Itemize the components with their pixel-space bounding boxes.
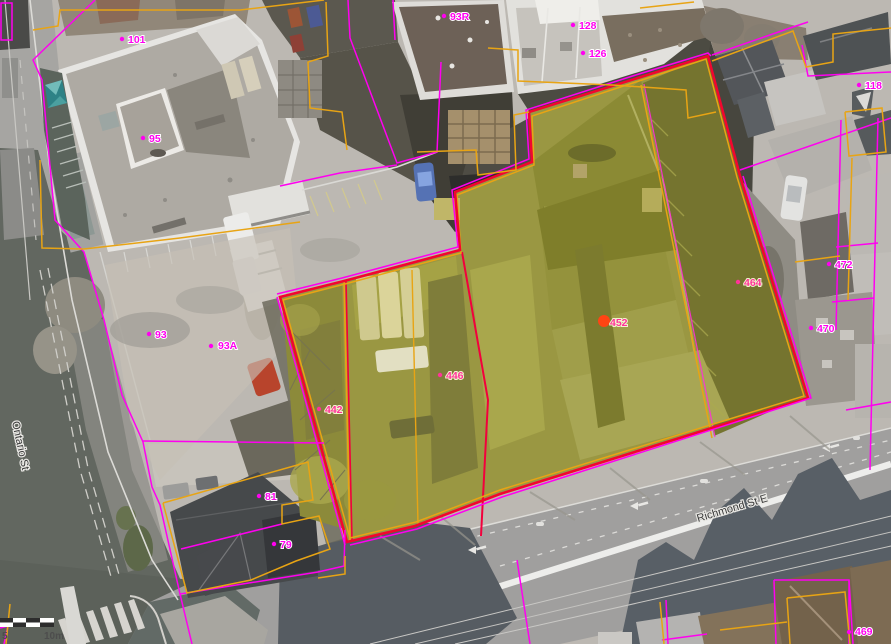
- svg-text:10m: 10m: [44, 631, 64, 642]
- svg-text:93: 93: [155, 329, 167, 341]
- svg-text:469: 469: [855, 626, 873, 638]
- svg-text:95: 95: [149, 133, 161, 145]
- svg-text:81: 81: [265, 491, 277, 503]
- svg-text:442: 442: [325, 404, 343, 416]
- svg-text:446: 446: [446, 370, 464, 382]
- svg-text:126: 126: [589, 48, 607, 60]
- svg-text:128: 128: [579, 20, 597, 32]
- svg-text:472: 472: [835, 259, 853, 271]
- svg-text:93R: 93R: [450, 11, 470, 23]
- svg-text:464: 464: [744, 277, 762, 289]
- svg-text:118: 118: [865, 80, 882, 92]
- svg-text:101: 101: [128, 34, 146, 46]
- svg-text:79: 79: [280, 539, 292, 551]
- svg-text:93A: 93A: [218, 340, 238, 352]
- svg-text:470: 470: [817, 323, 835, 335]
- svg-text:5: 5: [2, 631, 8, 642]
- svg-text:452: 452: [610, 317, 628, 329]
